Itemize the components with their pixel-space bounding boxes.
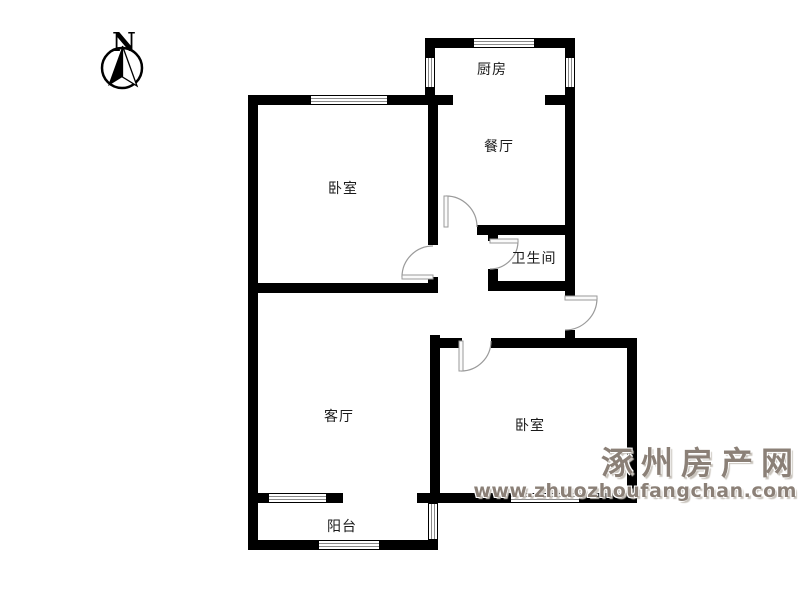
floorplan-drawing: N bbox=[0, 0, 800, 600]
compass: N bbox=[102, 28, 142, 88]
wall bbox=[248, 95, 258, 550]
entrance-door-leaf bbox=[565, 296, 597, 300]
window bbox=[269, 494, 327, 503]
wall bbox=[491, 338, 632, 348]
window bbox=[474, 39, 535, 48]
floorplan-canvas: N 厨房餐厅卧室卫生间客厅卧室阳台 涿州房产网 www.zhuozhoufang… bbox=[0, 0, 800, 600]
watermark-site-url: www.zhuozhoufangchan.com bbox=[473, 482, 797, 502]
wall bbox=[248, 283, 438, 293]
wall bbox=[428, 95, 438, 245]
window bbox=[429, 504, 438, 540]
wall bbox=[430, 335, 440, 503]
wall bbox=[565, 330, 575, 348]
window bbox=[311, 96, 388, 105]
bathroom-door-arc bbox=[490, 241, 518, 269]
window bbox=[566, 58, 575, 88]
compass-north-label: N bbox=[112, 28, 136, 58]
dining-door-leaf bbox=[444, 196, 448, 227]
window bbox=[319, 541, 380, 550]
bedroom-1-door-leaf bbox=[402, 275, 433, 279]
watermark: 涿州房产网 www.zhuozhoufangchan.com bbox=[473, 447, 797, 502]
wall bbox=[488, 281, 575, 291]
bedroom-1-door-arc bbox=[402, 246, 433, 277]
dining-door-arc bbox=[446, 196, 477, 227]
bathroom-door-leaf bbox=[490, 239, 518, 243]
bedroom-2-door-arc bbox=[461, 341, 491, 371]
watermark-site-name: 涿州房产网 bbox=[473, 447, 800, 481]
wall bbox=[488, 269, 498, 289]
bedroom-2-door-leaf bbox=[459, 341, 463, 371]
entrance-door-arc bbox=[565, 298, 597, 330]
window bbox=[426, 58, 435, 88]
